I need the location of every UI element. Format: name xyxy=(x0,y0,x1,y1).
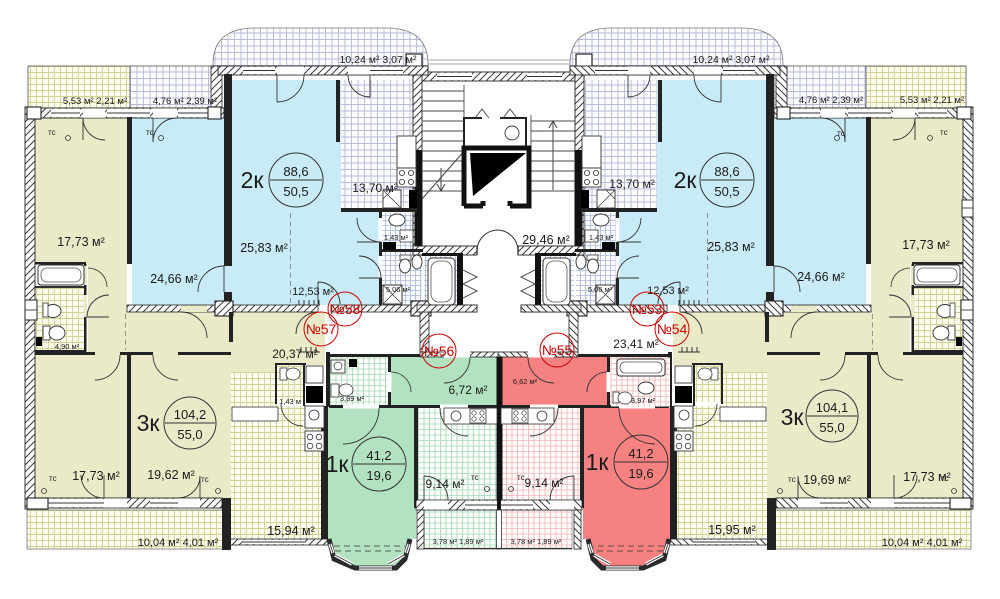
svg-text:тс: тс xyxy=(471,473,479,482)
svg-text:тс: тс xyxy=(517,473,525,482)
svg-text:4,90 м²: 4,90 м² xyxy=(55,342,80,351)
svg-text:104,1: 104,1 xyxy=(816,400,849,415)
svg-text:3,78 м² 1,89 м²: 3,78 м² 1,89 м² xyxy=(511,537,562,546)
svg-text:88,6: 88,6 xyxy=(283,164,308,179)
svg-text:тс: тс xyxy=(201,475,209,484)
svg-text:1к: 1к xyxy=(326,451,350,477)
svg-text:19,6: 19,6 xyxy=(628,466,653,481)
svg-text:20,37 м²: 20,37 м² xyxy=(272,347,318,361)
svg-text:1,43 м²: 1,43 м² xyxy=(589,233,614,242)
svg-text:№54: №54 xyxy=(657,321,688,337)
svg-text:13,70 м²: 13,70 м² xyxy=(609,177,655,191)
svg-text:5,53 м² 2,21 м²: 5,53 м² 2,21 м² xyxy=(63,96,127,107)
svg-text:19,6: 19,6 xyxy=(366,468,391,483)
svg-text:23,41 м²: 23,41 м² xyxy=(613,337,659,351)
svg-text:25,83 м²: 25,83 м² xyxy=(240,241,288,255)
svg-text:№57: №57 xyxy=(306,321,337,337)
svg-text:6,62 м²: 6,62 м² xyxy=(513,377,538,386)
svg-text:3,78 м² 1,89 м²: 3,78 м² 1,89 м² xyxy=(433,537,484,546)
svg-text:25,83 м²: 25,83 м² xyxy=(707,240,755,254)
svg-text:17,73 м²: 17,73 м² xyxy=(902,238,950,252)
svg-text:№58: №58 xyxy=(330,301,361,317)
svg-text:тс: тс xyxy=(940,128,948,137)
svg-text:5,06 м²: 5,06 м² xyxy=(588,285,613,294)
svg-text:13,70 м²: 13,70 м² xyxy=(352,181,398,195)
svg-text:тс: тс xyxy=(48,128,56,137)
svg-text:12,53 м²: 12,53 м² xyxy=(292,286,334,298)
svg-text:5,53 м² 2,21 м²: 5,53 м² 2,21 м² xyxy=(900,95,964,106)
svg-text:4,76 м² 2,39 м²: 4,76 м² 2,39 м² xyxy=(153,96,217,107)
svg-text:№53: №53 xyxy=(632,301,663,317)
svg-text:1,43 м²: 1,43 м² xyxy=(384,233,409,242)
svg-text:104,2: 104,2 xyxy=(174,407,207,422)
svg-text:24,66 м²: 24,66 м² xyxy=(150,272,198,286)
svg-text:6,72 м²: 6,72 м² xyxy=(449,383,488,397)
svg-text:тс: тс xyxy=(837,129,845,138)
svg-text:9,14 м²: 9,14 м² xyxy=(525,476,564,490)
svg-text:55,0: 55,0 xyxy=(819,420,844,435)
svg-text:4,76 м² 2,39 м²: 4,76 м² 2,39 м² xyxy=(799,95,863,106)
svg-text:9,14 м²: 9,14 м² xyxy=(426,477,465,491)
svg-text:50,5: 50,5 xyxy=(714,184,739,199)
svg-text:15,94 м²: 15,94 м² xyxy=(267,524,315,538)
svg-text:10,04 м² 4,01 м²: 10,04 м² 4,01 м² xyxy=(138,537,219,549)
svg-text:41,2: 41,2 xyxy=(628,446,653,461)
svg-text:19,69 м²: 19,69 м² xyxy=(803,473,851,487)
svg-text:тс: тс xyxy=(788,475,796,484)
svg-text:12,53 м²: 12,53 м² xyxy=(647,285,689,297)
svg-text:17,73 м²: 17,73 м² xyxy=(57,235,105,249)
svg-text:55,0: 55,0 xyxy=(177,427,202,442)
svg-text:10,24 м² 3,07 м²: 10,24 м² 3,07 м² xyxy=(340,54,417,66)
svg-text:10,24 м² 3,07 м²: 10,24 м² 3,07 м² xyxy=(693,54,770,66)
svg-text:19,62 м²: 19,62 м² xyxy=(147,468,195,482)
svg-text:2к: 2к xyxy=(241,167,265,193)
svg-text:5,06 м²: 5,06 м² xyxy=(386,285,411,294)
svg-text:3,89 м²: 3,89 м² xyxy=(340,394,365,403)
svg-text:тс: тс xyxy=(146,128,154,137)
svg-text:10,04 м² 4,01 м²: 10,04 м² 4,01 м² xyxy=(882,537,963,549)
svg-text:тс: тс xyxy=(49,474,57,483)
svg-text:88,6: 88,6 xyxy=(714,164,739,179)
svg-text:24,66 м²: 24,66 м² xyxy=(797,270,845,284)
svg-text:29,46 м²: 29,46 м² xyxy=(522,233,570,247)
svg-text:1,43 м: 1,43 м xyxy=(279,397,301,406)
svg-text:50,5: 50,5 xyxy=(283,184,308,199)
svg-text:3,97 м²: 3,97 м² xyxy=(631,396,656,405)
svg-text:15,95 м²: 15,95 м² xyxy=(708,523,756,537)
svg-text:№55: №55 xyxy=(542,342,573,358)
svg-text:1к: 1к xyxy=(586,449,610,475)
svg-text:17,73 м²: 17,73 м² xyxy=(72,469,120,483)
svg-text:3к: 3к xyxy=(781,404,805,430)
svg-text:2к: 2к xyxy=(674,167,698,193)
svg-text:№56: №56 xyxy=(424,343,455,359)
svg-text:тс: тс xyxy=(941,474,949,483)
svg-text:3к: 3к xyxy=(137,410,161,436)
svg-text:41,2: 41,2 xyxy=(366,448,391,463)
